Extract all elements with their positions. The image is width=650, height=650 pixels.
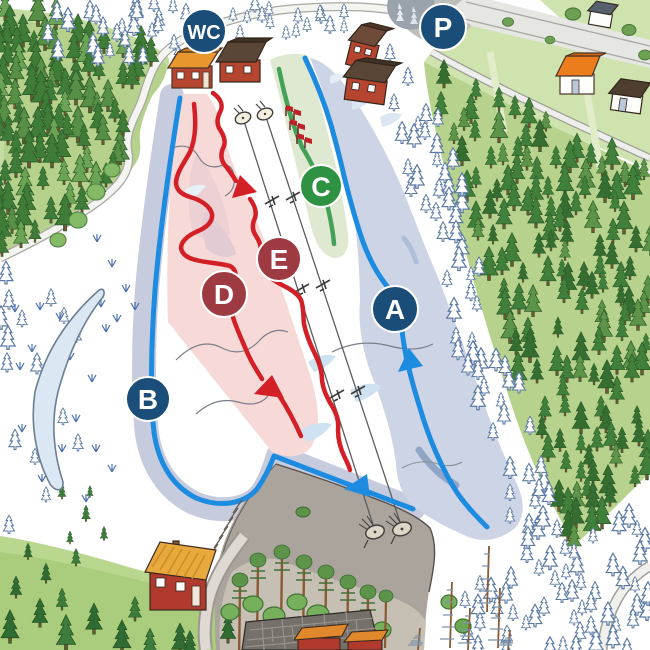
svg-text:D: D xyxy=(214,279,234,310)
svg-text:WC: WC xyxy=(187,22,220,44)
svg-text:B: B xyxy=(138,384,158,415)
svg-text:A: A xyxy=(385,294,405,325)
svg-text:E: E xyxy=(270,244,289,275)
svg-text:P: P xyxy=(434,12,453,43)
svg-text:C: C xyxy=(311,172,331,202)
